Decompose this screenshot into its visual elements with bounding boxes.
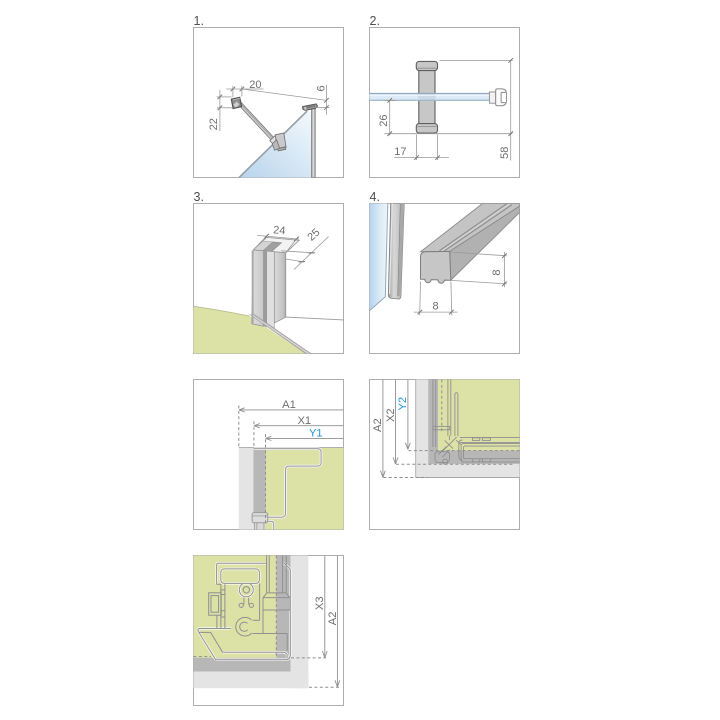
svg-text:A2: A2 [327,612,339,626]
svg-text:4.: 4. [370,190,380,204]
svg-text:8: 8 [433,301,439,313]
svg-text:1.: 1. [194,14,204,28]
svg-text:6: 6 [315,85,327,91]
svg-text:3.: 3. [194,190,204,204]
svg-text:22: 22 [208,118,220,130]
svg-text:17: 17 [394,146,406,158]
svg-text:2.: 2. [370,14,380,28]
svg-text:X2: X2 [385,408,397,422]
svg-text:8: 8 [491,269,503,275]
svg-text:X3: X3 [314,596,326,610]
svg-text:20: 20 [249,79,261,91]
svg-text:Y2: Y2 [397,397,409,411]
svg-text:X1: X1 [297,415,311,427]
svg-text:A2: A2 [372,418,384,432]
svg-text:A1: A1 [282,399,296,411]
svg-text:24: 24 [273,224,286,237]
svg-text:58: 58 [499,147,511,159]
svg-text:Y1: Y1 [309,428,323,440]
svg-text:26: 26 [378,114,390,126]
